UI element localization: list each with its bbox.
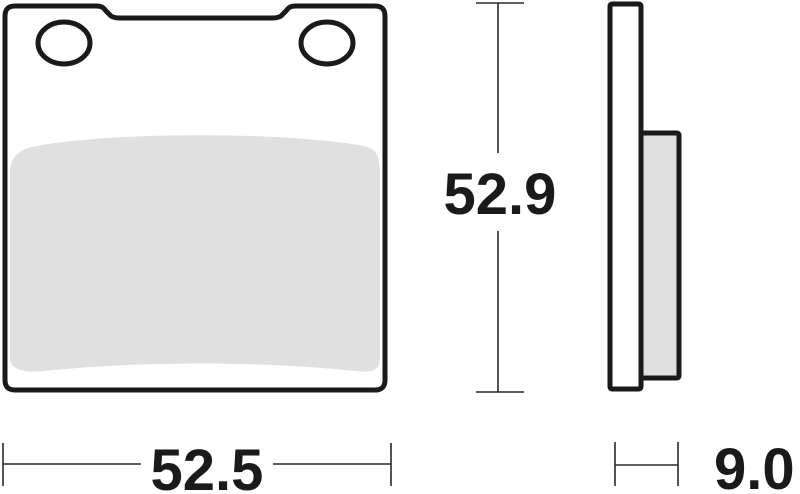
mounting-hole-left-icon — [38, 22, 90, 64]
width-dimension-label: 52.5 — [151, 438, 264, 494]
friction-material-side — [640, 133, 679, 378]
thickness-dimension-label: 9.0 — [714, 437, 795, 494]
brake-pad-drawing-svg: 52.5 52.9 9.0 — [0, 0, 800, 494]
front-view — [5, 6, 385, 390]
height-dimension: 52.9 — [444, 3, 557, 392]
width-dimension: 52.5 — [3, 438, 391, 494]
thickness-dimension: 9.0 — [615, 437, 795, 494]
height-dimension-label: 52.9 — [444, 162, 557, 227]
friction-material-front — [10, 135, 380, 371]
mounting-hole-right-icon — [301, 22, 353, 64]
side-view — [610, 4, 679, 389]
backing-plate-side — [610, 4, 641, 389]
technical-drawing: 52.5 52.9 9.0 — [0, 0, 800, 494]
